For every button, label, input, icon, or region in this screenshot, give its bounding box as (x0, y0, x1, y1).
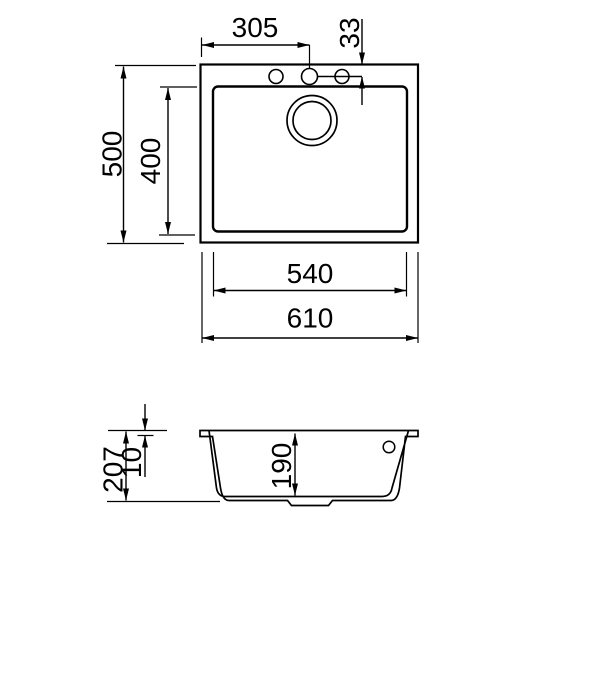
drain-inner-ring (293, 102, 331, 140)
dim-label-610: 610 (287, 303, 334, 334)
dim-rim-thickness-10: 10 (116, 404, 154, 478)
dim-tap-offset-305: 305 (202, 12, 310, 69)
arrowhead-down (121, 231, 127, 243)
dim-label-500: 500 (97, 131, 128, 178)
dim-bowl-depth-400: 400 (135, 87, 197, 235)
arrowhead-left (202, 42, 214, 48)
dim-bowl-depth-190: 190 (266, 434, 298, 496)
arrowhead-right (395, 288, 407, 294)
arrowhead-up (123, 432, 129, 444)
sink-outer-outline (201, 65, 419, 243)
dim-label-540: 540 (287, 258, 334, 289)
sink-technical-drawing: 305 33 500 400 (0, 0, 600, 689)
side-view: 207 10 190 (98, 404, 419, 506)
technical-drawing-page: 305 33 500 400 (0, 0, 600, 689)
dim-label-305: 305 (232, 12, 279, 43)
dim-label-10: 10 (116, 447, 147, 478)
arrowhead-left (214, 288, 226, 294)
arrowhead-down (165, 222, 171, 234)
dim-label-33: 33 (334, 17, 365, 48)
arrowhead-right (406, 335, 418, 341)
dim-label-190: 190 (266, 443, 297, 490)
arrowhead-left (202, 335, 214, 341)
tap-hole-left (269, 70, 283, 84)
arrowhead-up (121, 67, 127, 79)
arrowhead-down (359, 53, 365, 65)
arrowhead-down (142, 419, 148, 431)
dim-label-400: 400 (135, 138, 166, 185)
arrowhead-up (165, 88, 171, 100)
arrowhead-right (298, 42, 310, 48)
dim-bowl-width-540: 540 (214, 252, 407, 297)
arrowhead-up (142, 436, 148, 448)
top-view: 305 33 500 400 (97, 12, 419, 343)
overflow-hole (383, 441, 395, 453)
tap-hole-center (302, 69, 318, 85)
